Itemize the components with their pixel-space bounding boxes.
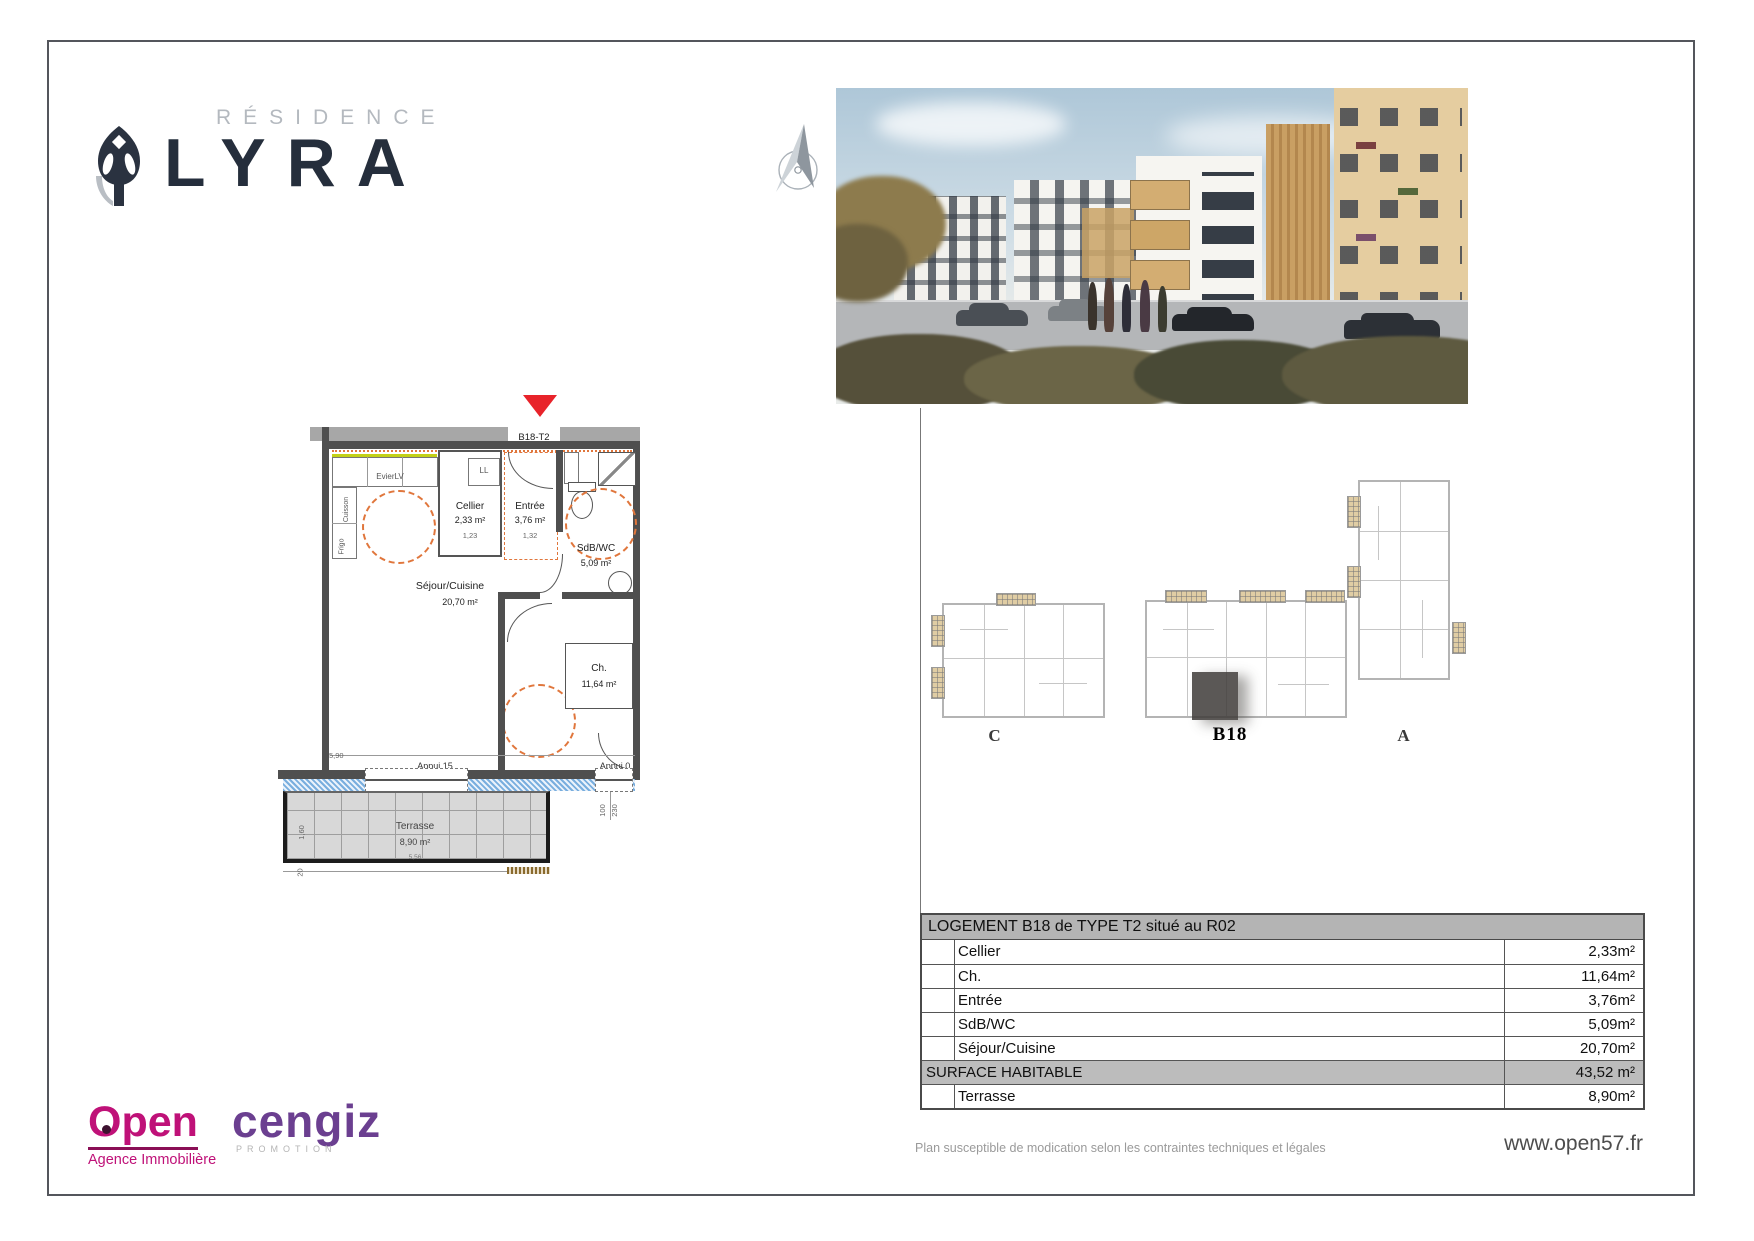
open-logo-dot <box>102 1125 111 1134</box>
washer-box: LL <box>468 458 500 486</box>
corridor-band <box>310 427 640 441</box>
window-sejour <box>365 768 468 792</box>
people-group <box>1088 276 1174 334</box>
disclaimer-text: Plan susceptible de modication selon les… <box>915 1141 1326 1155</box>
table-row: Entrée 3,76m² <box>922 988 1643 1012</box>
dim-20: 20 <box>296 862 304 880</box>
siteplan-b18 <box>1145 600 1347 718</box>
building-render-photo <box>836 88 1468 404</box>
wall-right <box>633 441 640 780</box>
bathtub <box>598 452 636 486</box>
car <box>1172 314 1254 331</box>
tulip-logo-icon <box>90 124 148 206</box>
building-center-windows <box>1202 172 1254 312</box>
wall-ch-horizontal <box>498 592 540 599</box>
wall-sdb <box>556 450 563 532</box>
plan-sheet: RÉSIDENCE LYRA <box>0 0 1754 1241</box>
table-row: Séjour/Cuisine 20,70m² <box>922 1036 1643 1060</box>
entree-dim: 1,32 <box>502 525 558 543</box>
highlighted-unit-b18 <box>1192 672 1238 720</box>
building-left-wood-accent <box>1082 208 1134 278</box>
siteplan-label-a: A <box>1384 726 1424 746</box>
siteplan-label-b18: B18 <box>1190 724 1270 746</box>
table-surface-row: SURFACE HABITABLE 43,52 m² <box>922 1060 1643 1084</box>
dim-100: 100 <box>596 800 609 818</box>
unit-tag: B18-T2 <box>508 427 560 441</box>
brand-name: LYRA <box>164 124 427 202</box>
flower-box <box>1398 188 1418 195</box>
wall-ch-horizontal-2 <box>562 592 640 599</box>
wall-top <box>322 441 640 449</box>
compass-icon <box>764 118 830 202</box>
siteplan-label-c: C <box>975 726 1015 746</box>
sdb-area: 5,09 m² <box>556 553 636 571</box>
cengiz-logo: cengiz PROMOTION <box>232 1094 402 1154</box>
window-ch <box>595 768 633 792</box>
cooktop-label: Cuisson <box>334 498 354 516</box>
fridge-label: Frigo <box>334 535 354 553</box>
kitchen-sink-label: EvierLV <box>350 466 430 484</box>
open-logo-text: Open <box>88 1098 198 1146</box>
ch-area: 11,64 m² <box>565 674 633 692</box>
open-logo: Open Agence Immobilière <box>88 1098 218 1168</box>
floorplan: B18-T2 EvierLV Cuisson Frigo LL Cellier … <box>250 340 650 885</box>
car <box>956 310 1028 326</box>
brand-logo: RÉSIDENCE LYRA <box>86 96 506 216</box>
website-link[interactable]: www.open57.fr <box>1420 1132 1643 1156</box>
table-terrace-row: Terrasse 8,90m² <box>922 1084 1643 1108</box>
unit-divider <box>332 523 357 524</box>
terrasse-dim: 5,56 <box>380 846 450 864</box>
balcony <box>1130 180 1190 210</box>
cengiz-logo-text: cengiz <box>232 1094 402 1148</box>
dim-230: 230 <box>608 800 621 818</box>
washer-label: LL <box>469 459 499 483</box>
unit-locator-triangle <box>523 395 557 417</box>
table-row: Cellier 2,33m² <box>922 940 1643 964</box>
flower-box <box>1356 142 1376 149</box>
balcony <box>1130 220 1190 250</box>
table-row: SdB/WC 5,09m² <box>922 1012 1643 1036</box>
wall-ch-vertical <box>498 599 505 772</box>
siteplan-c <box>942 603 1105 718</box>
cloud <box>876 102 1066 146</box>
table-header-text: LOGEMENT B18 de TYPE T2 situé au R02 <box>928 918 1236 936</box>
cabinet-te <box>564 452 579 484</box>
cellier-dim: 1,23 <box>438 525 502 543</box>
table-row: Ch. 11,64m² <box>922 964 1643 988</box>
table-header-row: LOGEMENT B18 de TYPE T2 situé au R02 <box>922 915 1643 940</box>
wall-left <box>322 427 329 780</box>
terrace-hatch-strip <box>507 867 550 874</box>
open-logo-tagline: Agence Immobilière <box>88 1152 218 1168</box>
sdb-door-arc <box>540 554 563 593</box>
area-table: LOGEMENT B18 de TYPE T2 situé au R02 Cel… <box>920 913 1645 1110</box>
flower-box <box>1356 234 1376 241</box>
dim-590: 5,90 <box>329 745 344 763</box>
siteplan-a <box>1358 480 1450 680</box>
section-divider <box>920 408 921 913</box>
turning-circle-kitchen <box>362 490 436 564</box>
dim-160: 1,60 <box>294 822 309 840</box>
